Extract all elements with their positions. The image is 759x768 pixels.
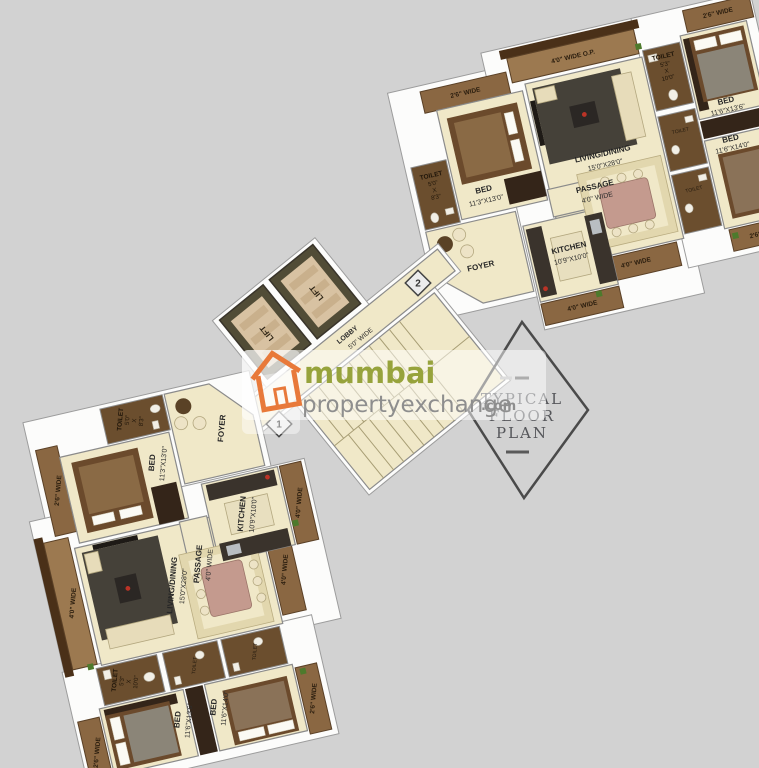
bed3-name: BED bbox=[208, 698, 218, 716]
toilet2-dim-x: X bbox=[127, 679, 133, 684]
toilet1-dim-x: X bbox=[132, 418, 138, 423]
bed2-name: BED bbox=[172, 711, 182, 729]
toilet2-dim-l: 10'0" bbox=[133, 675, 140, 689]
marker-number: 2 bbox=[415, 279, 421, 290]
toilet2-dim-w: 5'3" bbox=[119, 676, 126, 686]
floor-plan-svg: 4'0" WIDE O.P. 2'6" WIDE 2'6" WIDE 2'6" … bbox=[0, 0, 759, 768]
brand-primary: mumbai bbox=[304, 356, 435, 390]
bed1-name: BED bbox=[147, 454, 157, 472]
toilet1-dim-w: 5'0" bbox=[125, 415, 132, 425]
toilet1-dim-l: 8'3" bbox=[139, 416, 146, 426]
brand-tld: .com bbox=[481, 399, 516, 414]
stamp-line3: PLAN bbox=[496, 424, 548, 442]
floor-plan-canvas: 4'0" WIDE O.P. 2'6" WIDE 2'6" WIDE 2'6" … bbox=[0, 0, 759, 768]
